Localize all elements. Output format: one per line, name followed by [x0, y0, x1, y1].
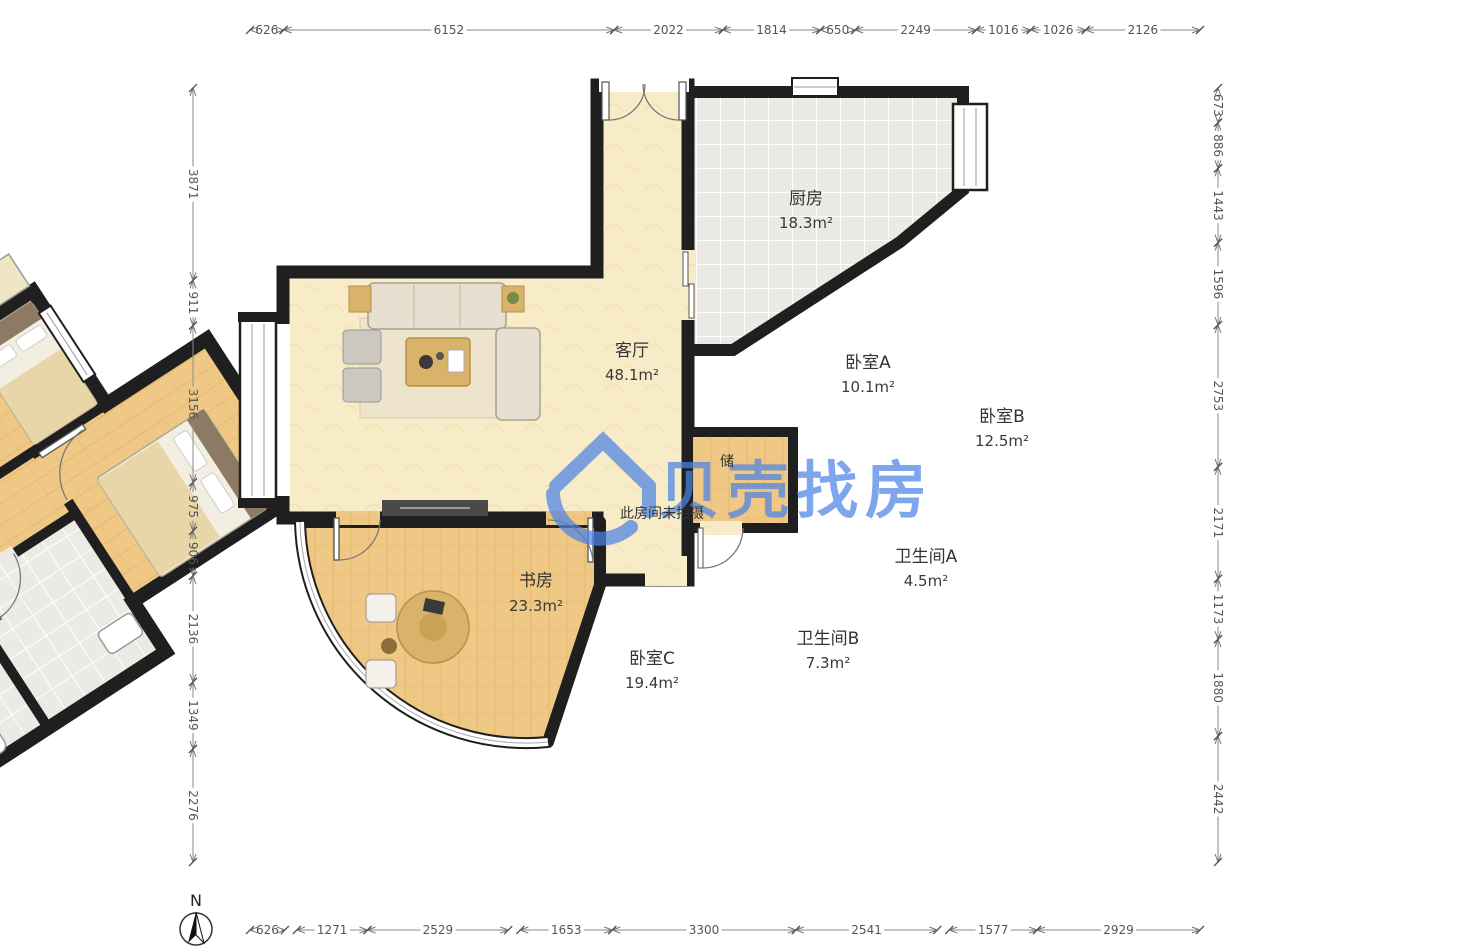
- svg-text:2529: 2529: [423, 923, 454, 937]
- armchair: [343, 330, 381, 364]
- svg-text:2929: 2929: [1103, 923, 1134, 937]
- living-bay-window: [238, 312, 290, 508]
- svg-text:975: 975: [186, 495, 200, 518]
- svg-text:1880: 1880: [1211, 672, 1225, 703]
- label-bedroomA-name: 卧室A: [845, 353, 891, 373]
- label-bathA-area: 4.5m²: [904, 572, 948, 590]
- svg-text:3871: 3871: [186, 169, 200, 200]
- side-table: [349, 286, 371, 312]
- kitchen-top-window: [792, 78, 838, 96]
- label-bedroomC-area: 19.4m²: [625, 674, 679, 692]
- chair: [366, 594, 396, 622]
- svg-text:626: 626: [255, 23, 278, 37]
- label-bedroomA-area: 10.1m²: [841, 378, 895, 396]
- compass-n-label: N: [190, 891, 202, 910]
- svg-text:1271: 1271: [317, 923, 348, 937]
- svg-text:1814: 1814: [756, 23, 787, 37]
- dimension-ruler-top: 6266152202218146502249101610262126: [246, 23, 1204, 37]
- svg-text:650: 650: [826, 23, 849, 37]
- svg-text:886: 886: [1211, 134, 1225, 157]
- hall-opening: [645, 556, 687, 586]
- svg-text:1577: 1577: [978, 923, 1009, 937]
- svg-text:2541: 2541: [851, 923, 882, 937]
- svg-text:2126: 2126: [1128, 23, 1159, 37]
- floorplan-canvas: 贝壳找房 客厅 48.1m² 厨房 18.3m² 卧室A 10.1m² 卧室B …: [0, 0, 1478, 952]
- svg-text:2136: 2136: [186, 614, 200, 645]
- svg-text:1349: 1349: [186, 700, 200, 731]
- svg-text:1653: 1653: [551, 923, 582, 937]
- svg-text:2249: 2249: [900, 23, 931, 37]
- label-living-area: 48.1m²: [605, 366, 659, 384]
- svg-text:1596: 1596: [1211, 269, 1225, 300]
- chaise: [496, 328, 540, 420]
- label-bedroomB-name: 卧室B: [979, 407, 1025, 427]
- label-study-name: 书房: [519, 571, 553, 591]
- svg-text:626: 626: [256, 923, 279, 937]
- svg-text:6152: 6152: [434, 23, 465, 37]
- label-kitchen-area: 18.3m²: [779, 214, 833, 232]
- svg-text:2276: 2276: [186, 790, 200, 821]
- sofa: [368, 283, 506, 329]
- kitchen-window: [953, 104, 987, 190]
- north-compass: N: [180, 891, 212, 945]
- svg-text:1173: 1173: [1211, 594, 1225, 625]
- svg-text:3300: 3300: [689, 923, 720, 937]
- svg-text:3156: 3156: [186, 389, 200, 420]
- label-bathA-name: 卫生间A: [895, 547, 958, 567]
- label-bedroomB-area: 12.5m²: [975, 432, 1029, 450]
- floorplan-page: 贝壳找房 客厅 48.1m² 厨房 18.3m² 卧室A 10.1m² 卧室B …: [0, 0, 1478, 952]
- svg-text:673: 673: [1211, 94, 1225, 117]
- label-bedroomC-name: 卧室C: [629, 649, 675, 669]
- svg-text:906: 906: [186, 542, 200, 565]
- label-living-name: 客厅: [615, 341, 649, 361]
- dimension-ruler-right: 6738861443159627532171117318802442: [1211, 84, 1225, 866]
- label-bathB-name: 卫生间B: [797, 629, 860, 649]
- label-study-area: 23.3m²: [509, 597, 563, 615]
- room-study: [300, 511, 600, 743]
- dimension-ruler-bottom: 6261271252916533300254115772929: [246, 923, 1204, 937]
- label-kitchen-name: 厨房: [789, 189, 823, 209]
- svg-text:2442: 2442: [1211, 784, 1225, 815]
- kitchen-sliding-door: [680, 250, 696, 320]
- svg-text:1443: 1443: [1211, 190, 1225, 221]
- armchair: [343, 368, 381, 402]
- label-bathB-area: 7.3m²: [806, 654, 850, 672]
- svg-text:2753: 2753: [1211, 381, 1225, 412]
- label-not-photographed: 此房间未拍摄: [620, 506, 704, 522]
- svg-text:1016: 1016: [988, 23, 1019, 37]
- svg-text:2022: 2022: [653, 23, 684, 37]
- chair: [366, 660, 396, 688]
- svg-text:911: 911: [186, 291, 200, 314]
- room-kitchen: [688, 78, 987, 350]
- label-storage: 储: [720, 454, 734, 470]
- svg-text:1026: 1026: [1043, 23, 1074, 37]
- svg-text:2171: 2171: [1211, 508, 1225, 539]
- stool: [381, 638, 397, 654]
